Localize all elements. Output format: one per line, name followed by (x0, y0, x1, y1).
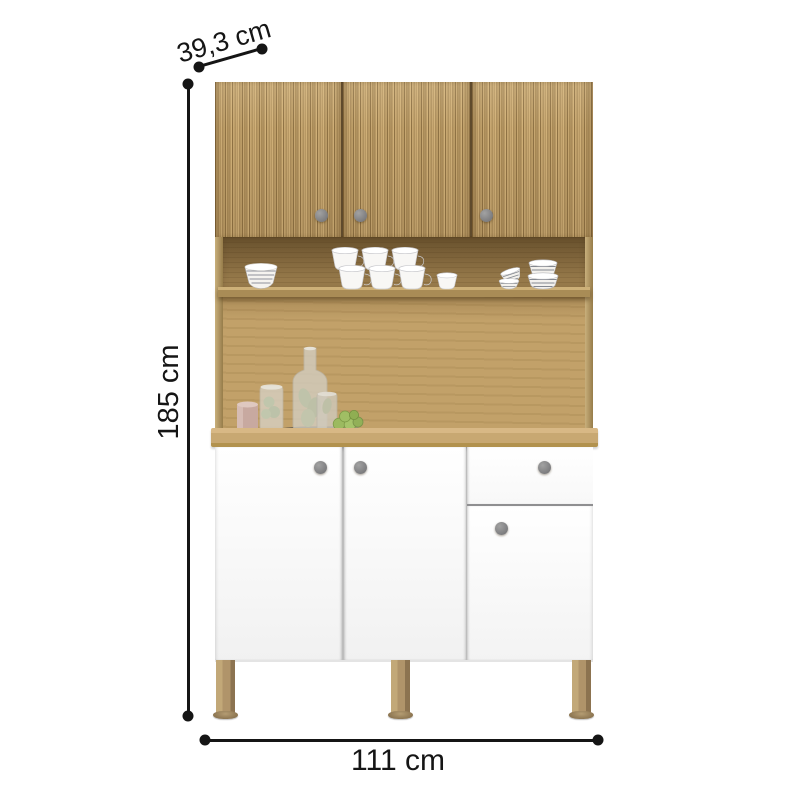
leg-center (391, 660, 410, 713)
depth-dimension-label: 39,3 cm (166, 11, 282, 72)
product-dimension-image: 39,3 cm 185 cm 111 cm (0, 0, 800, 800)
width-dimension-label: 111 cm (346, 744, 450, 778)
leg-left (216, 660, 235, 713)
upper-cabinet (215, 82, 593, 237)
counter-decor (215, 340, 593, 435)
drawer-knob (538, 461, 551, 474)
width-line-dot-right (593, 735, 604, 746)
width-line-dot-left (200, 735, 211, 746)
white-cup-stack-group (332, 247, 431, 289)
width-dimension-line (205, 739, 598, 742)
lower-right-door-knob (495, 522, 508, 535)
countertop (211, 428, 598, 447)
small-white-cup (437, 273, 457, 289)
upper-left-door-knob (315, 209, 328, 222)
height-dimension-label: 185 cm (153, 340, 183, 444)
lower-left-door-knob (314, 461, 327, 474)
upper-right-door-knob (480, 209, 493, 222)
lower-door-right (467, 506, 593, 660)
lower-middle-door-knob (354, 461, 367, 474)
upper-middle-door-knob (354, 209, 367, 222)
lower-right-section (467, 447, 593, 660)
glass-jar-with-plant (260, 384, 283, 431)
lower-door-left (215, 447, 342, 660)
candle (237, 402, 258, 432)
leg-right (572, 660, 591, 713)
shelf-dishes (215, 237, 593, 297)
drawer-front (467, 447, 593, 506)
height-line-dot-bottom (183, 711, 194, 722)
height-dimension-line (187, 84, 190, 716)
striped-bowl-stack (245, 263, 277, 288)
striped-bowl-stack-right (528, 260, 558, 289)
lower-cabinet (215, 447, 593, 662)
lower-door-middle (344, 447, 467, 660)
height-line-dot-top (183, 79, 194, 90)
small-striped-bowls (499, 266, 523, 289)
